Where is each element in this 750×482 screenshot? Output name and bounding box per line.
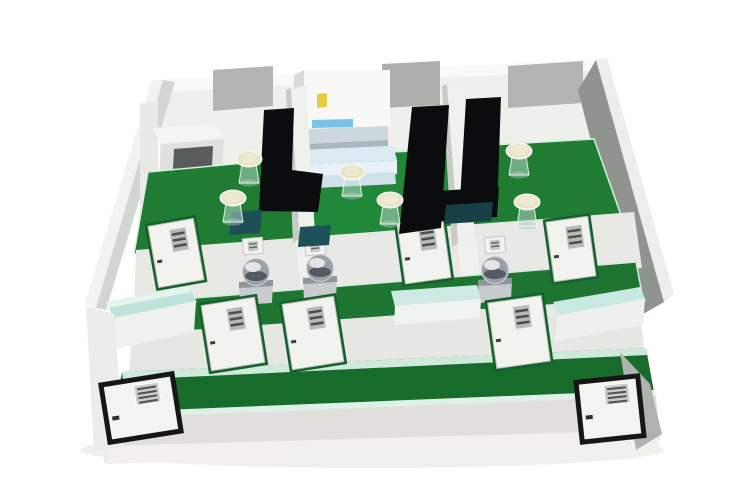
door-front-room-right xyxy=(484,292,553,372)
back-wall-panel-left xyxy=(213,66,273,111)
biosafety-cabinet-yellow-label xyxy=(317,93,327,108)
door-anteroom-right xyxy=(543,213,600,285)
floor-equipment-teal-2 xyxy=(298,225,331,247)
cleanroom-3d-render xyxy=(0,0,750,482)
wall-sign-right xyxy=(484,236,505,254)
sink-unit-right xyxy=(478,257,512,304)
desk-equipment-slot xyxy=(173,146,213,169)
door-front-room-left xyxy=(198,294,269,374)
biosafety-cabinet-blue-strip xyxy=(312,119,353,128)
door-exit-left xyxy=(101,374,181,443)
door-exit-right xyxy=(576,376,644,442)
floor-equipment-teal-3 xyxy=(444,202,493,224)
back-wall-panel-center xyxy=(382,61,440,108)
back-wall-panel-right xyxy=(508,61,583,108)
wall-sign-left xyxy=(242,237,263,255)
isometric-scene xyxy=(0,0,750,482)
door-front-room-center xyxy=(279,293,348,373)
